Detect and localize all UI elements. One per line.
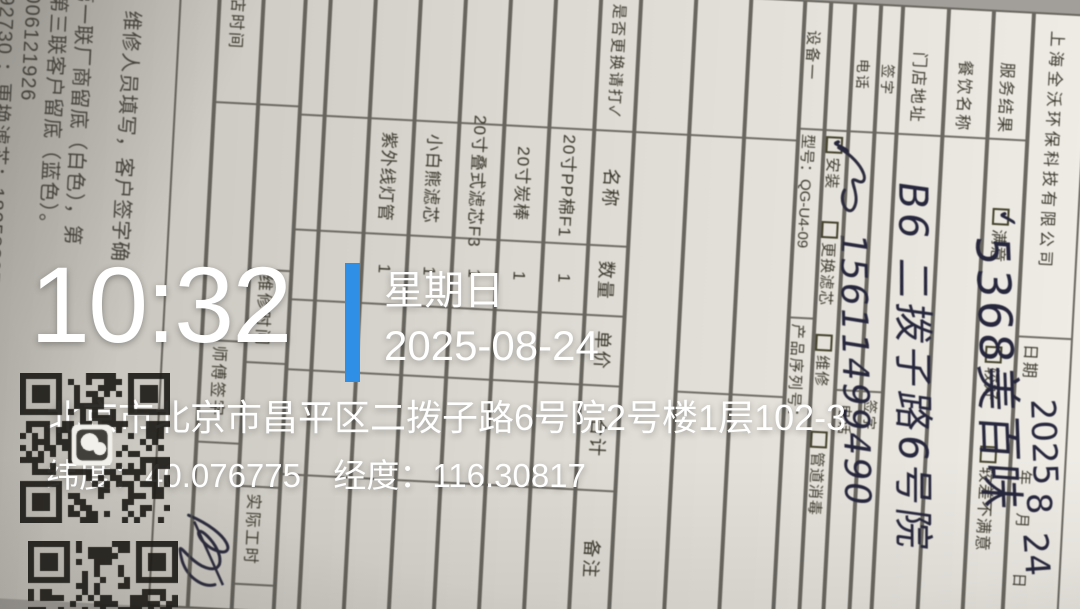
footer-line: 供，维修人员填写，客户签字确 bbox=[107, 0, 151, 263]
part-qty: 1 bbox=[542, 242, 587, 314]
handwritten-store-address: B6 二拨子路6号院 bbox=[887, 178, 945, 557]
checkbox-pipe-disinfect: 管道消毒 bbox=[804, 431, 829, 517]
header-remark: 备注 bbox=[570, 489, 613, 609]
longitude-value: 116.30817 bbox=[432, 457, 586, 494]
timestamp-date: 2025-08-24 bbox=[384, 322, 599, 370]
divider bbox=[827, 129, 847, 132]
divider bbox=[898, 133, 940, 137]
arrival-time-label: 进店时间 bbox=[225, 0, 253, 51]
checkbox-icon bbox=[821, 221, 839, 239]
divider bbox=[801, 128, 823, 131]
longitude-label: 经度： bbox=[333, 457, 432, 494]
checkbox-label: 维修 bbox=[811, 355, 834, 388]
device-section-label: 设备一 bbox=[801, 30, 825, 82]
timestamp-weekday: 星期日 bbox=[384, 258, 504, 316]
service-result-label: 服务结果 bbox=[994, 62, 1022, 135]
part-name: 20寸叠式滤芯F3 bbox=[455, 122, 502, 239]
checkbox-label: 更换滤芯 bbox=[815, 242, 839, 307]
timestamp-accent-bar bbox=[345, 263, 360, 382]
date-month-unit: 月 bbox=[1012, 512, 1034, 530]
qr-code-secondary bbox=[28, 541, 178, 609]
part-name: 小白熊滤芯 bbox=[411, 120, 458, 237]
divider bbox=[791, 316, 813, 319]
pen-scribble bbox=[827, 141, 877, 223]
divider bbox=[989, 138, 1025, 142]
divider bbox=[876, 132, 894, 135]
checkbox-label: 管道消毒 bbox=[804, 452, 828, 517]
handwritten-restaurant-name: 5368美百味 bbox=[962, 234, 1038, 515]
header-qty: 数量 bbox=[587, 244, 627, 316]
header-name: 名称 bbox=[590, 129, 632, 246]
check-mark: ✓ bbox=[991, 207, 1022, 231]
qr-code-primary bbox=[20, 373, 170, 523]
checkbox-replace-filter: 更换滤芯 bbox=[815, 221, 840, 307]
timestamp-time: 10:32 bbox=[30, 242, 290, 367]
handwritten-date-day: 24 bbox=[1014, 531, 1057, 577]
divider bbox=[944, 135, 985, 139]
header-replace: 是否更换请打✓ bbox=[596, 0, 639, 131]
phone-label: 电话 bbox=[852, 58, 874, 91]
photo-screenshot: 上海全沃环保科技有限公司 日期 2025 年 8 月 24 日 服务结果 ✓ 满… bbox=[0, 0, 1080, 609]
part-name: 20寸炭棒 bbox=[500, 124, 547, 241]
checkbox-icon bbox=[815, 334, 833, 352]
checkbox-icon: ✓ bbox=[992, 208, 1010, 226]
part-name: 紫外线灯管 bbox=[366, 117, 413, 234]
date-day-unit: 日 bbox=[1009, 572, 1031, 590]
part-name: 20寸PP棉F1 bbox=[545, 127, 592, 244]
sign-label: 签字 bbox=[876, 64, 898, 97]
checkbox-repair: 维修 bbox=[811, 334, 835, 388]
store-address-label: 门店地址 bbox=[906, 51, 934, 124]
divider bbox=[850, 130, 872, 133]
restaurant-name-label: 餐饮名称 bbox=[952, 60, 980, 133]
